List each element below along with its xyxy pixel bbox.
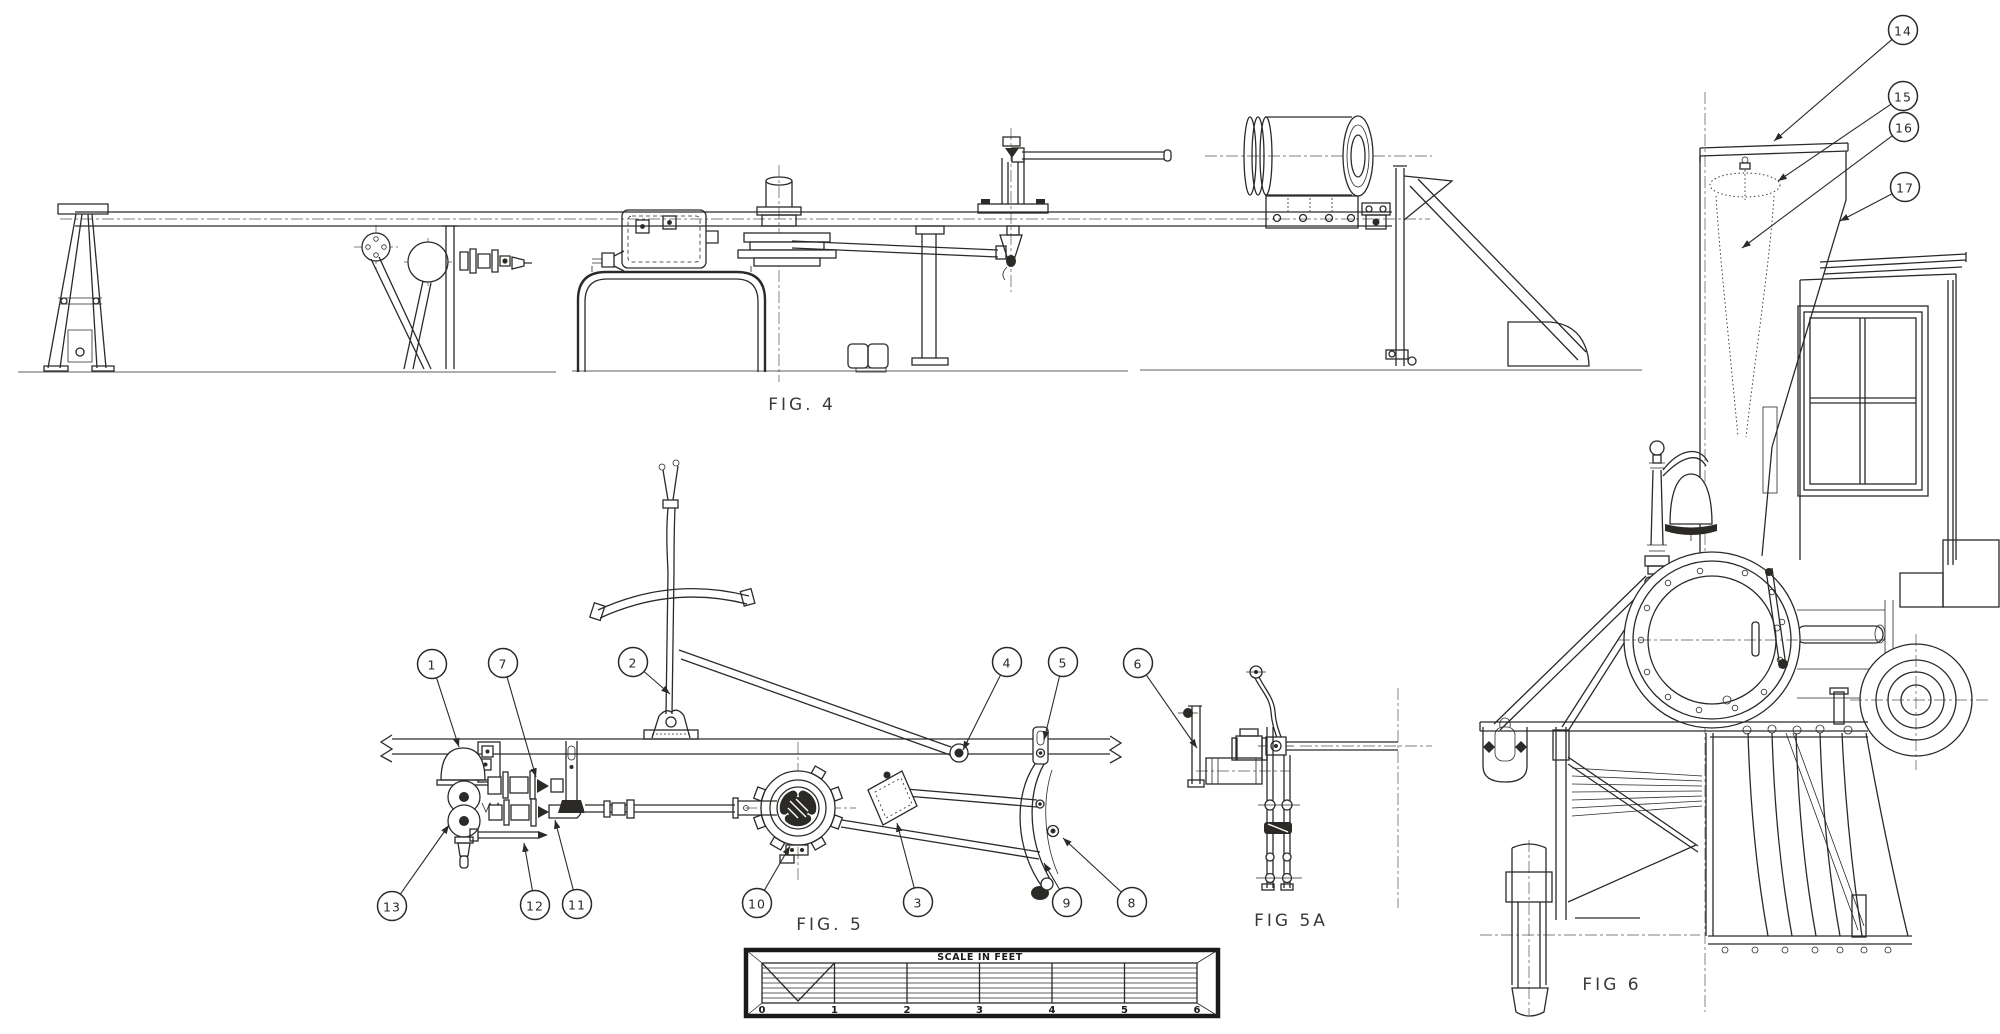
callout-5: 5: [1044, 648, 1078, 741]
scale-tick-0: 0: [759, 1005, 766, 1016]
fig6-smokestack: [1700, 143, 1848, 556]
svg-text:12: 12: [526, 899, 544, 914]
fig6-wheel-springs: [1480, 727, 1702, 1016]
leaf-springs: [1572, 768, 1702, 816]
fig6-pilot: [1706, 725, 1912, 953]
fig5-detail-drawing: [381, 460, 1121, 900]
scale-tick-5: 5: [1121, 1005, 1128, 1016]
fig6-boiler-cylinder: [1797, 540, 1999, 770]
fig5-valve-group: [437, 741, 735, 868]
svg-text:9: 9: [1063, 896, 1072, 911]
fig5-long-link: [679, 650, 953, 756]
fig4-support-stand: [44, 204, 114, 371]
svg-text:10: 10: [748, 897, 766, 912]
callout-1: 1: [418, 650, 460, 748]
fig6-front-view: [1480, 92, 1999, 1016]
fig6-cab: [1763, 252, 1966, 565]
svg-text:15: 15: [1894, 90, 1912, 105]
svg-text:7: 7: [499, 657, 508, 672]
svg-text:16: 16: [1895, 121, 1913, 136]
fig4-column: [738, 165, 836, 382]
fig5-lever-assembly: [590, 460, 755, 739]
scale-tick-2: 2: [904, 1005, 911, 1016]
fig4-valve-assembly: [978, 128, 1171, 292]
fig6-smokebox: [1618, 552, 1800, 728]
scale-tick-4: 4: [1049, 1005, 1056, 1016]
svg-text:1: 1: [428, 658, 437, 673]
engineering-drawing-sheet: SCALE IN FEET 0123456 FIG. 4 FIG. 5 FIG …: [0, 0, 2000, 1034]
callout-11: 11: [555, 820, 592, 919]
fig5a-detail-drawing: [1178, 666, 1432, 908]
svg-text:8: 8: [1128, 896, 1137, 911]
scale-bar: SCALE IN FEET 0123456: [746, 950, 1218, 1016]
svg-text:17: 17: [1896, 181, 1914, 196]
scale-tick-1: 1: [831, 1005, 838, 1016]
callout-4: 4: [963, 648, 1022, 751]
svg-text:5: 5: [1059, 656, 1068, 671]
fig4-frame-loop: [578, 266, 765, 372]
svg-text:13: 13: [383, 900, 401, 915]
callout-2: 2: [619, 648, 671, 695]
callout-6: 6: [1124, 649, 1198, 749]
fig4-sheave-discs: [354, 225, 458, 369]
callout-12: 12: [521, 843, 550, 920]
callout-layer: 1724561312111039814151617: [378, 16, 1920, 921]
scale-tick-6: 6: [1194, 1005, 1201, 1016]
fig5-label: FIG. 5: [796, 915, 864, 935]
scale-bar-title: SCALE IN FEET: [937, 952, 1023, 963]
callout-7: 7: [489, 649, 537, 778]
fig5-diamond-plate: [868, 771, 917, 825]
fig5-curved-arm: [1020, 764, 1058, 900]
fig5a-label: FIG 5A: [1254, 911, 1328, 931]
fig4-brace: [1386, 166, 1589, 366]
fig5-ratchet-wheel: [733, 742, 856, 882]
fig4-side-elevation: [18, 116, 1642, 382]
ground-line: [18, 370, 1642, 372]
cab-window-mullions: [1810, 318, 1916, 484]
scale-tick-3: 3: [976, 1005, 983, 1016]
fig6-label: FIG 6: [1582, 975, 1641, 995]
svg-text:3: 3: [914, 896, 923, 911]
callout-13: 13: [378, 825, 450, 921]
svg-text:4: 4: [1003, 656, 1012, 671]
figure-labels: FIG. 4 FIG. 5 FIG 5A FIG 6: [768, 395, 1641, 995]
fig4-label: FIG. 4: [768, 395, 836, 415]
callout-17: 17: [1840, 173, 1920, 222]
fig4-junction-box: [848, 344, 888, 372]
svg-text:6: 6: [1134, 657, 1143, 672]
callout-10: 10: [743, 846, 791, 918]
fig4-coupling: [460, 249, 532, 273]
svg-text:11: 11: [568, 898, 586, 913]
svg-text:2: 2: [629, 656, 638, 671]
svg-text:14: 14: [1894, 24, 1912, 39]
fig5-connecting-rods: [841, 789, 1040, 859]
